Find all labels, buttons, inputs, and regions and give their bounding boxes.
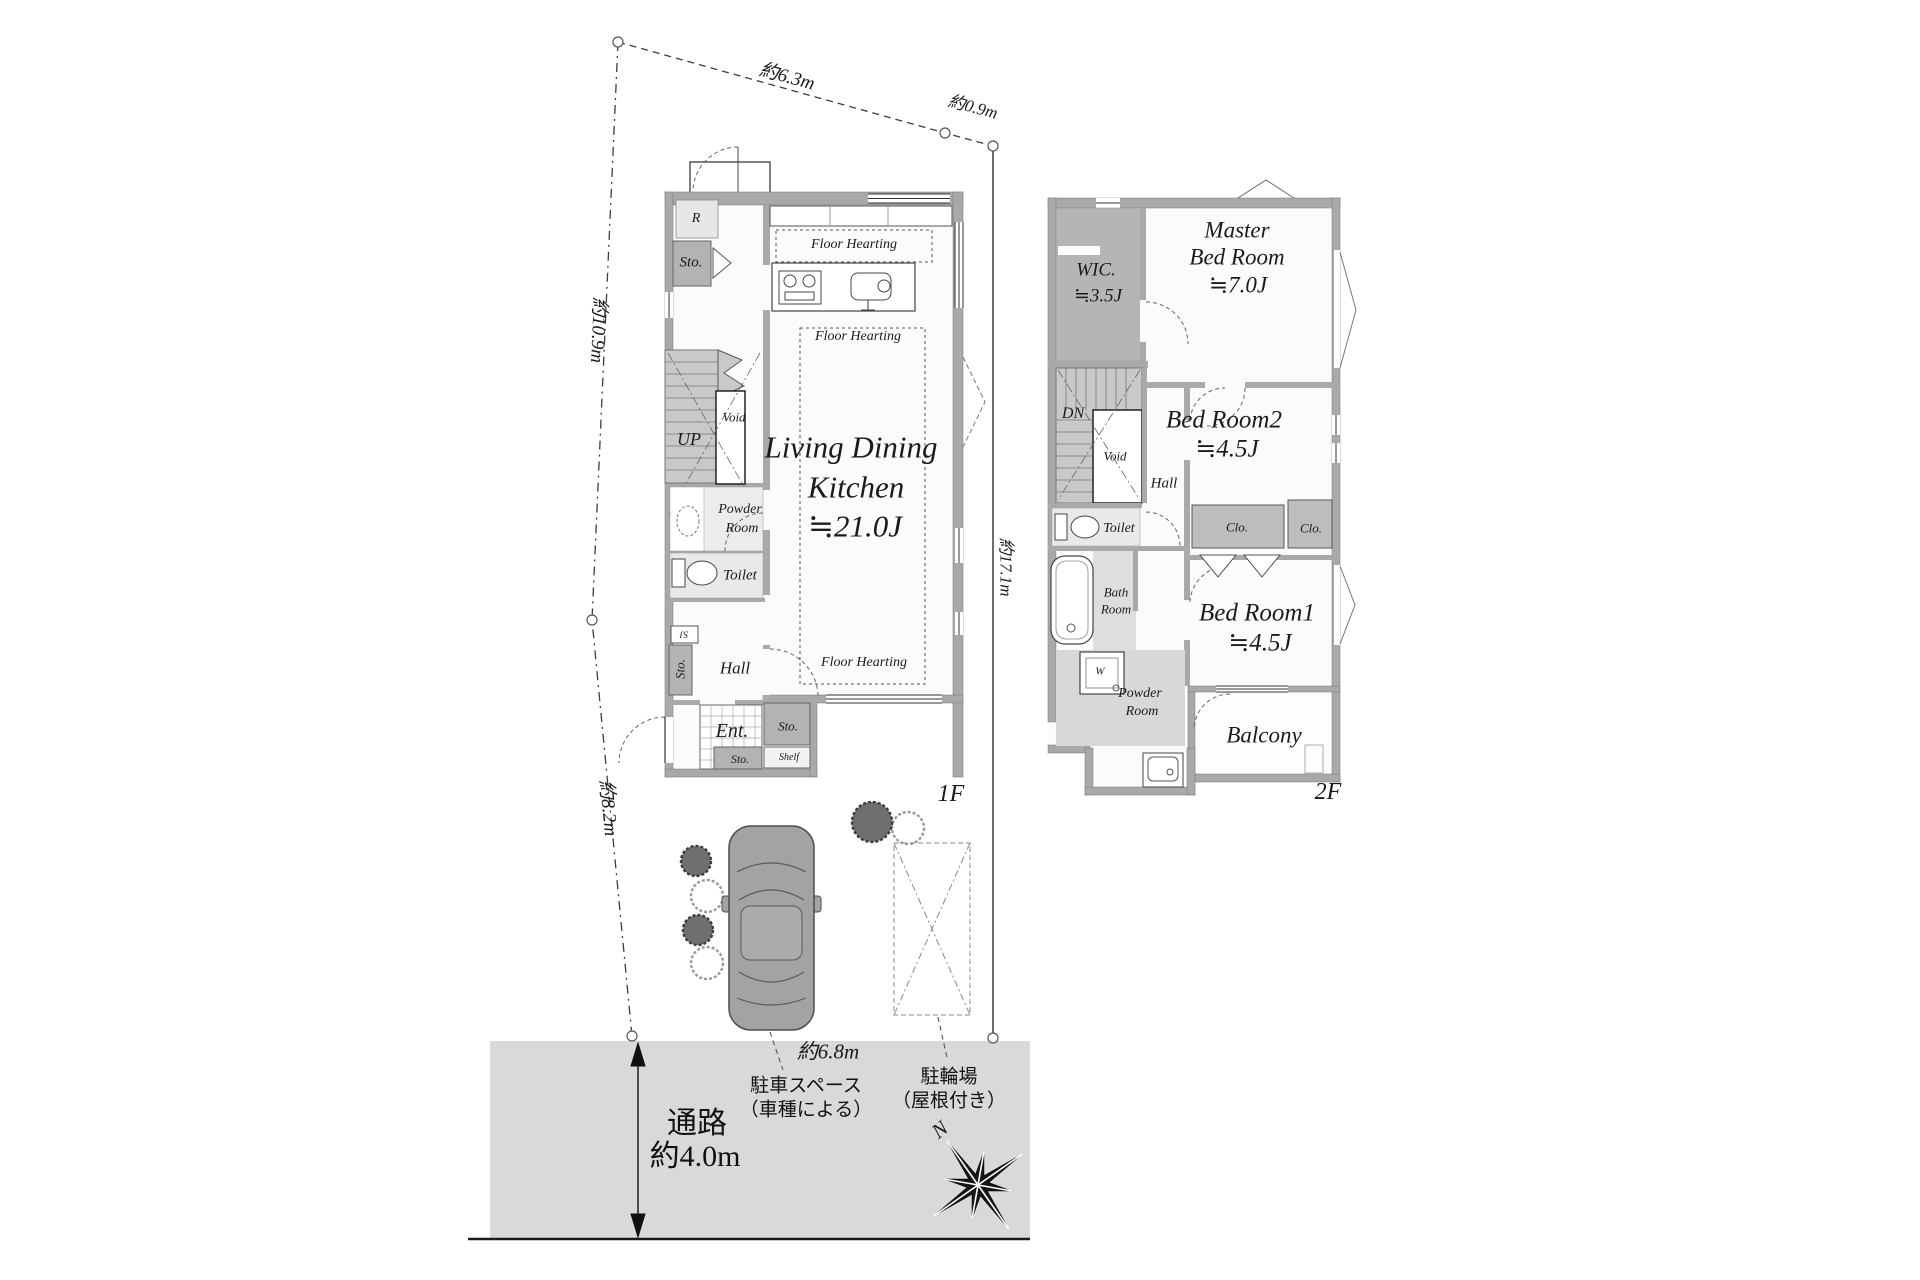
floorplan-graphic xyxy=(0,0,1920,1280)
bicycle-parking xyxy=(894,843,970,1015)
up-label: UP xyxy=(677,430,701,448)
powder-room-label-line1-1f: Powder xyxy=(718,503,762,517)
toilet-label-2f: Toilet xyxy=(1103,522,1134,536)
storage-label-hall: Sto. xyxy=(674,659,687,679)
ldk-size-label: ≒21.0J xyxy=(808,511,902,542)
parking-label-line1: 駐車スペース xyxy=(750,1077,862,1096)
floor1-tag: 1F xyxy=(938,782,965,806)
master-label-line2: Bed Room xyxy=(1189,246,1284,269)
washer-label: W xyxy=(1095,667,1104,678)
floor2-tag: 2F xyxy=(1315,780,1342,804)
dim-parking-width: 約6.8m xyxy=(797,1042,859,1063)
shelf-label: Shelf xyxy=(779,753,799,763)
dim-right: 約17.1m xyxy=(998,537,1015,596)
floor-heating-label-3: Floor Hearting xyxy=(821,656,907,670)
entrance-label: Ent. xyxy=(716,721,749,741)
toilet-label-1f: Toilet xyxy=(723,569,757,584)
bedroom2-size-label: ≒4.5J xyxy=(1195,437,1258,462)
dim-left-lower: 約8.2m xyxy=(596,779,620,837)
floorplan-page: 約6.3m 約0.9m 約10.9m 約8.2m 約17.1m 約6.8m 通路… xyxy=(0,0,1920,1280)
car xyxy=(722,826,821,1030)
bath-label-line1: Bath xyxy=(1104,586,1129,599)
bedroom2-label: Bed Room2 xyxy=(1166,408,1282,433)
powder-room-label-line1-2f: Powder xyxy=(1118,687,1162,701)
storage-label-ent-small: Sto. xyxy=(731,753,749,765)
dim-left-upper: 約10.9m xyxy=(587,297,609,364)
powder-room-label-line2-2f: Room xyxy=(1126,705,1159,719)
road-name-label: 通路 xyxy=(667,1109,727,1139)
wic-size-label: ≒3.5J xyxy=(1074,287,1122,306)
bath-label-line2: Room xyxy=(1101,603,1131,616)
storage-label-top: Sto. xyxy=(680,256,703,271)
ldk-label-line2: Kitchen xyxy=(808,472,904,503)
void-label-1f: Void xyxy=(722,411,745,424)
bicycle-label-line1: 駐輪場 xyxy=(920,1068,977,1087)
refrigerator-label: R xyxy=(692,212,701,226)
parking-label-line2: （車種による） xyxy=(740,1101,872,1120)
master-label-line1: Master xyxy=(1204,219,1269,242)
closet-label-b: Clo. xyxy=(1300,522,1322,535)
bedroom1-size-label: ≒4.5J xyxy=(1228,631,1291,656)
shoes-label: SJ xyxy=(680,630,689,639)
stairs-2f xyxy=(1056,368,1142,503)
road-width-label: 約4.0m xyxy=(650,1142,741,1172)
bedroom1-label: Bed Room1 xyxy=(1199,601,1315,626)
floor-heating-label-2: Floor Hearting xyxy=(815,330,901,344)
storage-label-ent-right: Sto. xyxy=(778,720,798,733)
closet-label-a: Clo. xyxy=(1226,521,1248,534)
ldk-label-line1: Living Dining xyxy=(764,432,937,463)
balcony-label: Balcony xyxy=(1226,724,1301,747)
floor-heating-label-1: Floor Hearting xyxy=(811,238,897,252)
powder-room-label-line2-1f: Room xyxy=(726,522,759,536)
master-size-label: ≒7.0J xyxy=(1209,274,1267,297)
void-label-2f: Void xyxy=(1103,450,1126,463)
wic-label: WIC. xyxy=(1076,261,1116,280)
dn-label: DN xyxy=(1062,406,1084,422)
hall-label-1f: Hall xyxy=(720,660,750,677)
bicycle-label-line2: （屋根付き） xyxy=(892,1092,1006,1111)
wic-area xyxy=(1056,208,1142,361)
hall-label-2f: Hall xyxy=(1151,477,1178,492)
